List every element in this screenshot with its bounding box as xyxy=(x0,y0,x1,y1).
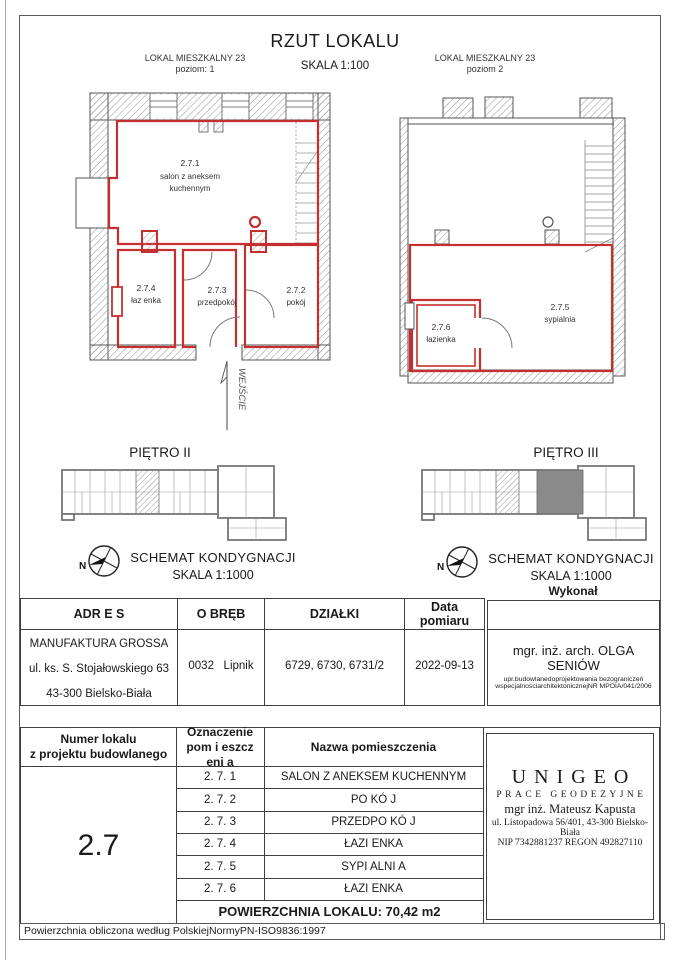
rooms-header-col2-line2: pom i eszcz eni a xyxy=(176,740,264,770)
room-row-name: ŁAZI ENKA xyxy=(264,833,483,855)
compass-icon: N xyxy=(78,543,124,581)
rooms-header-col1-line2: z projektu budowlanego xyxy=(30,747,167,762)
info-col-adres: ADR E S MANUFAKTURA GROSSA ul. ks. S. St… xyxy=(21,599,178,705)
room-lazienka-id: 2.7.4 xyxy=(137,283,156,293)
highlighted-unit-hatch xyxy=(136,470,159,514)
room-row-name: PRZEDPO KÓ J xyxy=(264,811,483,833)
apartment-outline-red xyxy=(410,245,612,371)
schematic-floor-3 xyxy=(420,462,650,542)
room-lazienka-name: łaz enka xyxy=(131,296,161,305)
room-row-id: 2. 7. 6 xyxy=(176,878,264,900)
info-col-obreb: O BRĘB 0032 Lipnik xyxy=(178,599,265,705)
schemat-label-right: SCHEMAT KONDYGNACJI xyxy=(481,551,661,566)
rooms-header-col2-line1: Oznaczenie xyxy=(187,725,253,740)
lokal-number: 2.7 xyxy=(21,823,176,869)
executor-box: mgr. inż. arch. OLGA SENIÓW upr.budowlan… xyxy=(487,600,660,706)
walls xyxy=(90,93,330,360)
room-row-id: 2. 7. 1 xyxy=(176,766,264,788)
room-row-name: PO KÓ J xyxy=(264,788,483,811)
info-table: ADR E S MANUFAKTURA GROSSA ul. ks. S. St… xyxy=(20,598,485,706)
apartment-outline-red xyxy=(109,121,318,347)
room-przedpokoj-name: przedpokój xyxy=(197,298,236,307)
page-scale: SKALA 1:100 xyxy=(240,58,430,73)
executor-cred2: wspecjalnościarchitektonicznejNR MPOIA/0… xyxy=(488,683,659,690)
rooms-header-col1: Numer lokalu z projektu budowlanego xyxy=(21,728,176,766)
scan-edge-line xyxy=(5,0,6,960)
unigeo-name: UNIGEO xyxy=(487,766,653,789)
stairs xyxy=(296,122,317,243)
unigeo-address: ul. Listopadowa 56/401, 43-300 Bielsko-B… xyxy=(487,818,653,838)
info-col-dzialki: DZIAŁKI 6729, 6730, 6731/2 xyxy=(265,599,405,705)
adres-line2: ul. ks. S. Stojałowskiego 63 xyxy=(21,657,177,682)
schemat-scale-right: SKALA 1:1000 xyxy=(481,568,661,583)
room-salon-name2: kuchennym xyxy=(170,184,211,193)
room-labels: 2.7.5 sypialnia 2.7.6 łazienka xyxy=(426,302,576,344)
unigeo-nip: NIP 7342881237 REGON 492827110 xyxy=(487,838,653,848)
room-row-name: SYPI ALNI A xyxy=(264,855,483,878)
info-adres-value: MANUFAKTURA GROSSA ul. ks. S. Stojałowsk… xyxy=(21,630,177,707)
column-circle xyxy=(543,217,553,227)
info-data-value: 2022-09-13 xyxy=(405,630,484,702)
info-header-dzialki: DZIAŁKI xyxy=(265,599,404,630)
info-header-adres: ADR E S xyxy=(21,599,177,630)
highlighted-unit-dark xyxy=(537,470,583,514)
pier-square xyxy=(435,230,449,244)
footer-note-text: Powierzchnia obliczona według PolskiejNo… xyxy=(24,925,326,937)
rooms-header-col1-line1: Numer lokalu xyxy=(60,732,136,747)
executor-header-strip xyxy=(488,601,659,630)
rooms-header-col3: Nazwa pomieszczenia xyxy=(264,728,483,766)
page-title: RZUT LOKALU xyxy=(240,30,430,52)
schemat-label-left: SCHEMAT KONDYGNACJI xyxy=(123,550,303,565)
plan-left-header: LOKAL MIESZKALNY 23 poziom: 1 xyxy=(130,53,260,75)
floor-plan-level1: WEJŚCIE 2.7.1 salon z aneksem kuchennym … xyxy=(70,88,335,438)
wall-fixture xyxy=(405,303,414,329)
room-row-name: ŁAZI ENKA xyxy=(264,878,483,900)
room-row-id: 2. 7. 4 xyxy=(176,833,264,855)
room-lazienka2-id: 2.7.6 xyxy=(432,322,451,332)
room-sypialnia-name: sypialnia xyxy=(544,315,576,324)
room-salon-id: 2.7.1 xyxy=(181,158,200,168)
drawing-sheet: RZUT LOKALU SKALA 1:100 LOKAL MIESZKALNY… xyxy=(0,0,679,960)
unigeo-stamp: UNIGEO PRACE GEODEZYJNE mgr inż. Mateusz… xyxy=(486,733,654,920)
room-lazienka2-name: łazienka xyxy=(426,335,456,344)
plan-left-header-line1: LOKAL MIESZKALNY 23 xyxy=(130,53,260,64)
entrance-label: WEJŚCIE xyxy=(236,368,248,411)
wykonal-label: Wykonał xyxy=(487,584,659,598)
info-col-data: Data pomiaru 2022-09-13 xyxy=(405,599,484,705)
room-row-name: SALON Z ANEKSEM KUCHENNYM xyxy=(264,766,483,788)
room-row-id: 2. 7. 5 xyxy=(176,855,264,878)
plan-right-header-line2: poziom 2 xyxy=(420,64,550,75)
unigeo-person: mgr inż. Mateusz Kapusta xyxy=(487,802,653,817)
room-sypialnia-id: 2.7.5 xyxy=(551,302,570,312)
stairs xyxy=(585,140,613,252)
door-gap xyxy=(470,318,484,348)
info-header-obreb: O BRĘB xyxy=(178,599,264,630)
rooms-header-col2: Oznaczenie pom i eszcz eni a xyxy=(176,728,264,766)
executor-name: mgr. inż. arch. OLGA SENIÓW xyxy=(488,643,659,673)
room-przedpokoj-id: 2.7.3 xyxy=(208,285,227,295)
executor-cred1: upr.budowlanedoprojektowania bezogranicz… xyxy=(488,676,659,683)
plan-right-header-line1: LOKAL MIESZKALNY 23 xyxy=(420,53,550,64)
room-pokoj-id: 2.7.2 xyxy=(287,285,306,295)
floor-plan-level2: 2.7.5 sypialnia 2.7.6 łazienka xyxy=(393,90,630,390)
floor3-title: PIĘTRO III xyxy=(506,444,626,460)
compass-n-label: N xyxy=(437,562,444,573)
area-total: POWIERZCHNIA LOKALU: 70,42 m2 xyxy=(176,900,483,923)
door-swing xyxy=(482,318,512,348)
room-row-id: 2. 7. 3 xyxy=(176,811,264,833)
plan-right-header: LOKAL MIESZKALNY 23 poziom 2 xyxy=(420,53,550,75)
plan-left-header-line2: poziom: 1 xyxy=(130,64,260,75)
footer-note: Powierzchnia obliczona według PolskiejNo… xyxy=(19,923,665,940)
room-row-id: 2. 7. 2 xyxy=(176,788,264,811)
rooms-table: Numer lokalu z projektu budowlanego Ozna… xyxy=(20,727,660,924)
schemat-scale-left: SKALA 1:1000 xyxy=(123,567,303,582)
entrance-arrow xyxy=(221,361,227,430)
adres-line3: 43-300 Bielsko-Biała xyxy=(21,682,177,707)
room-salon-name1: salon z aneksem xyxy=(160,172,220,181)
info-header-data: Data pomiaru xyxy=(405,599,484,630)
adres-line1: MANUFAKTURA GROSSA xyxy=(21,632,177,657)
compass-icon: N xyxy=(436,544,482,582)
info-dzialki-value: 6729, 6730, 6731/2 xyxy=(265,630,404,702)
highlighted-unit-hatch xyxy=(496,470,519,514)
unigeo-subtitle: PRACE GEODEZYJNE xyxy=(487,790,653,800)
compass-n-label: N xyxy=(79,561,86,572)
schematic-floor-2 xyxy=(60,462,290,542)
bay-niche xyxy=(76,178,108,228)
floor2-title: PIĘTRO II xyxy=(100,444,220,460)
pier-square xyxy=(545,230,559,244)
room-pokoj-name: pokój xyxy=(286,298,305,307)
info-obreb-value: 0032 Lipnik xyxy=(178,630,264,702)
